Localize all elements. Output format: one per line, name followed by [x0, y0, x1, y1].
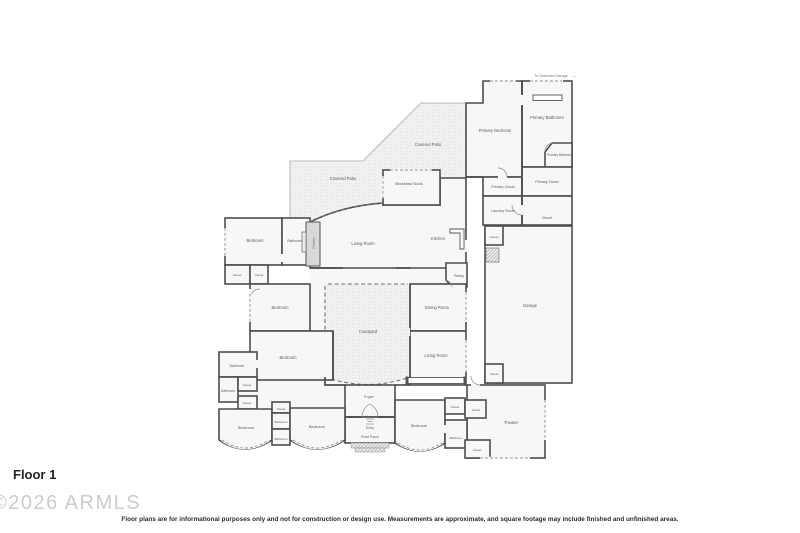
room-bathroom-se [445, 420, 467, 448]
armls-watermark: ©2026 ARMLS [0, 492, 141, 515]
room-label-bathroom-mid2: Bathroom [274, 437, 288, 441]
floorplan-drawing: Primary Bedroom Primary Bathroom Primary… [0, 0, 800, 533]
bath-vanity [533, 95, 562, 101]
room-label-garage-closet-top: Closet [490, 235, 499, 239]
room-breakfast-nook [383, 170, 440, 205]
room-label-dining-room: Dining Room [425, 305, 450, 310]
room-label-covered-patio-2: Covered Patio [330, 176, 357, 181]
room-label-breakfast-nook: Breakfast Nook [395, 181, 422, 186]
room-label-entry: Entry [366, 426, 374, 430]
room-label-closet-ne: Closet [542, 216, 552, 220]
room-entry-porch [345, 417, 395, 443]
floor-title: Floor 1 [13, 467, 56, 482]
room-label-closet-c: Closet [243, 383, 252, 387]
garage-note: To Detached Garage → [534, 73, 576, 78]
room-label-bedroom-s: Bedroom [309, 424, 326, 429]
room-label-theater: Theater [504, 420, 519, 425]
room-label-courtyard: Courtyard [359, 329, 378, 334]
room-label-bathroom-sw2: Bathroom [221, 389, 235, 393]
built-in-cabinet [408, 378, 464, 384]
room-foyer [345, 385, 395, 417]
room-label-bathroom-sw1: Bathroom [230, 364, 245, 368]
porch-steps-2 [355, 448, 385, 452]
built-in-end-left [406, 377, 409, 385]
room-label-bedroom-s-mid: Bedroom [280, 355, 298, 360]
room-label-closet-a: Closet [233, 273, 242, 277]
room-label-living-room-s: Living Room [424, 353, 448, 358]
room-label-closet-d: Closet [243, 401, 252, 405]
room-label-bathroom-nw: Bathroom [287, 239, 302, 243]
porch-steps [351, 443, 389, 448]
arrow-right-icon: → [572, 73, 577, 78]
room-label-garage-closet-bottom: Closet [490, 372, 499, 376]
room-label-bathroom-se: Bathroom [449, 436, 463, 440]
room-label-bedroom-sw: Bedroom [238, 425, 255, 430]
fireplace-hearth [302, 232, 306, 252]
room-label-bedroom-w: Bedroom [272, 305, 290, 310]
room-label-primary-toilet: Primary Bathroom [547, 153, 573, 157]
room-label-primary-closet-left: Primary Closet [491, 185, 515, 189]
room-label-bathroom-mid1: Bathroom [274, 420, 288, 424]
room-label-garage: Garage [523, 303, 538, 308]
room-label-foyer: Foyer [364, 395, 374, 399]
built-in-end-right [464, 377, 467, 385]
room-label-bedroom-se: Bedroom [411, 423, 428, 428]
room-label-covered-patio-1: Covered Patio [415, 142, 442, 147]
room-label-closet-se3: Closet [473, 448, 482, 452]
room-label-closet-b: Closet [255, 273, 264, 277]
room-label-pantry: Pantry [454, 274, 464, 278]
room-label-closet-se2: Closet [472, 408, 481, 412]
floorplan-page: Primary Bedroom Primary Bathroom Primary… [0, 0, 800, 533]
disclaimer-text: Floor plans are for informational purpos… [0, 516, 800, 523]
room-living-s [410, 331, 466, 385]
room-label-primary-bathroom: Primary Bathroom [530, 115, 564, 120]
room-label-laundry: Laundry Room [491, 209, 515, 213]
room-label-kitchen: Kitchen [431, 236, 446, 241]
room-label-primary-bedroom: Primary Bedroom [479, 128, 512, 133]
room-label-closet-se1: Closet [451, 405, 460, 409]
room-label-fireplace: Fireplace [312, 237, 316, 249]
room-label-bedroom-nw: Bedroom [247, 238, 265, 243]
room-label-front-porch: Front Porch [361, 435, 379, 439]
room-label-living-room: Living Room [351, 241, 375, 246]
room-courtyard [325, 284, 410, 385]
garage-note-text: To Detached Garage [534, 74, 567, 78]
utility-hatch [486, 248, 499, 262]
room-closet-ne [522, 196, 572, 225]
room-label-primary-closet-right: Primary Closet [535, 180, 559, 184]
room-label-closet-mid: Closet [277, 407, 286, 411]
